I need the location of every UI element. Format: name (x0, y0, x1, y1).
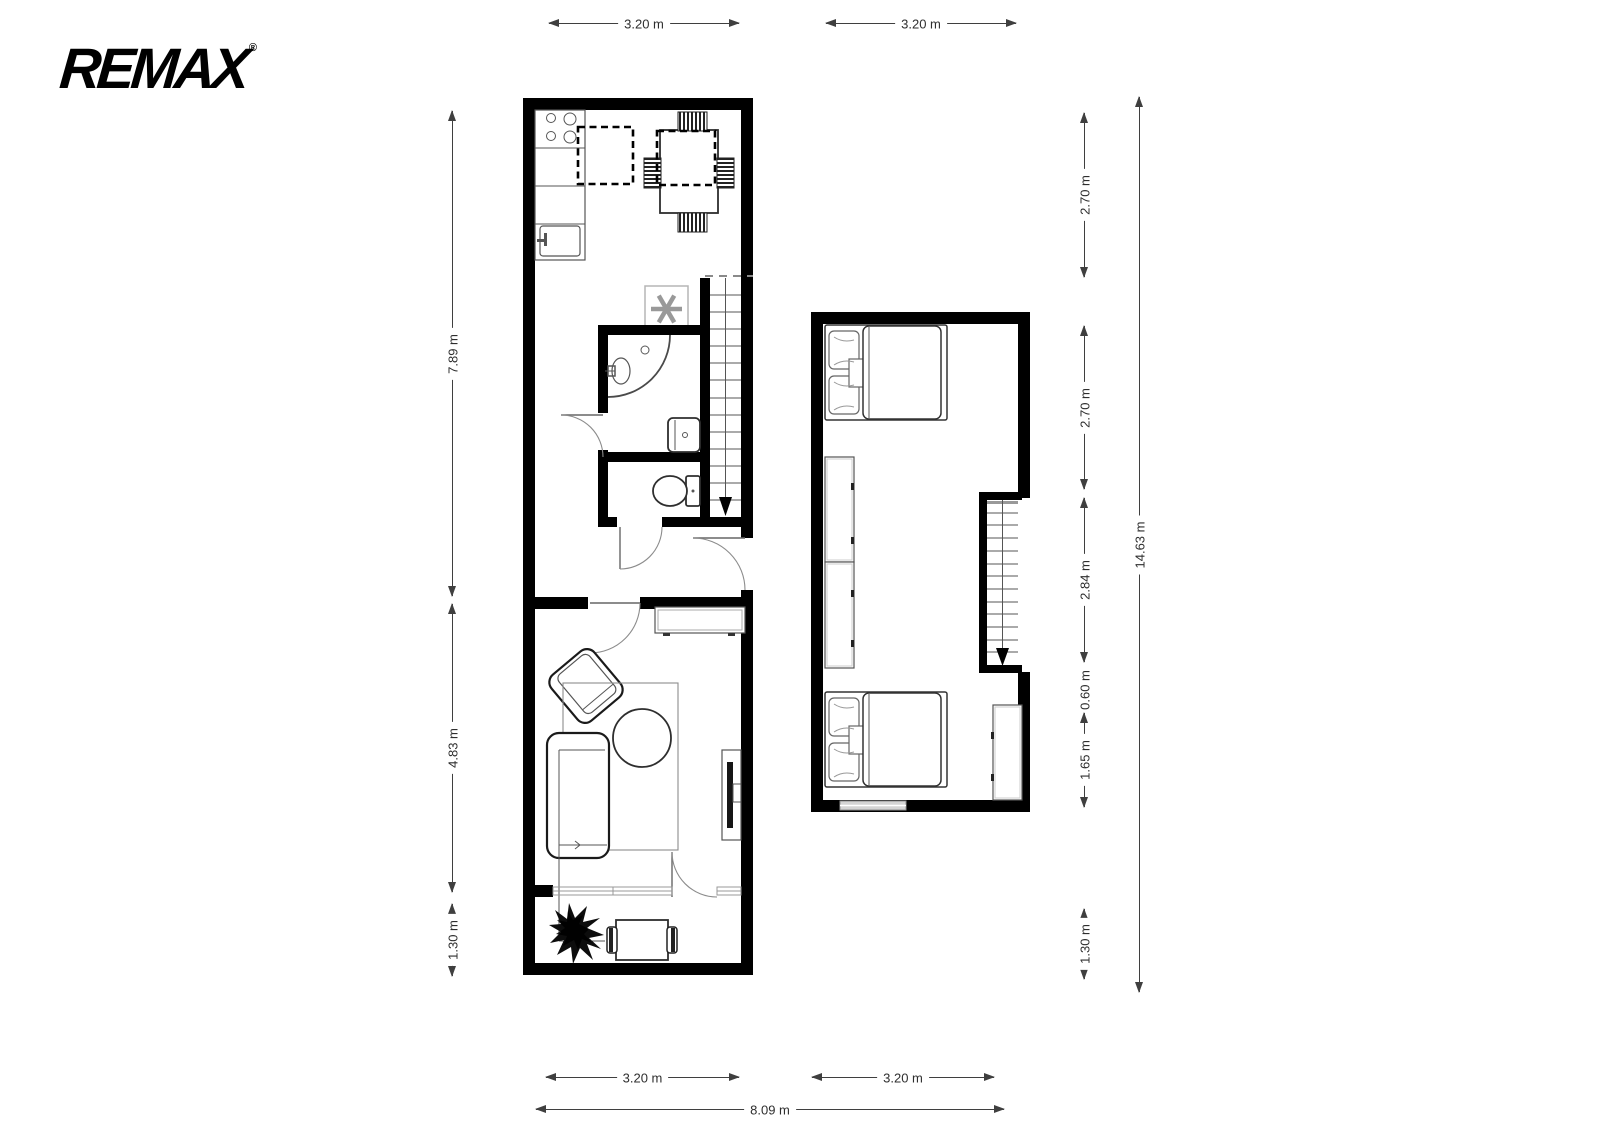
terrace-table-set (607, 920, 677, 960)
sideboard (655, 607, 745, 636)
dining-chair (644, 158, 661, 188)
window (840, 801, 906, 810)
dimension-label: 3.20 m (618, 17, 670, 32)
wc-door (620, 527, 662, 569)
dimension-total-height: 14.63 m (1133, 96, 1147, 993)
dimension-upper-zone4: 0.60 m (1078, 668, 1092, 712)
coffee-table (613, 709, 671, 767)
dimension-label: 14.63 m (1133, 515, 1148, 574)
dining-table-set (644, 112, 734, 232)
dining-chair (717, 158, 734, 188)
floorplan-canvas: REMAX® (0, 0, 1600, 1131)
entrance-door (693, 538, 745, 590)
dimension-total-width: 8.09 m (535, 1103, 1005, 1117)
dimension-ground-zone1: 7.89 m (446, 110, 460, 597)
dimension-label: 7.89 m (446, 328, 461, 380)
double-bed (825, 692, 947, 787)
plant (549, 903, 604, 964)
wardrobe (991, 705, 1022, 800)
terrace-window-wall (535, 885, 741, 897)
terrace-chair (607, 927, 617, 953)
dimension-label: 3.20 m (617, 1071, 669, 1086)
dimension-label: 3.20 m (877, 1071, 929, 1086)
double-bed (825, 325, 947, 420)
dimension-upper-zone5: 1.65 m (1078, 712, 1092, 808)
dimension-upper-top-width: 3.20 m (825, 17, 1017, 31)
dimension-label: 4.83 m (446, 722, 461, 774)
dimension-ground-zone3: 1.30 m (446, 903, 460, 977)
dimension-ground-bottom-width: 3.20 m (545, 1071, 740, 1085)
terrace-chair (667, 927, 677, 953)
staircase-down (979, 492, 1022, 673)
dining-chair (678, 213, 707, 232)
tv-unit (722, 750, 741, 840)
stair-direction-arrow (719, 497, 732, 516)
dimension-label: 3.20 m (895, 17, 947, 32)
remax-logo: REMAX® (60, 42, 257, 96)
dimension-label: 1.30 m (446, 914, 461, 966)
bathroom-door (561, 415, 603, 457)
dimension-label: 2.84 m (1078, 554, 1093, 606)
dimension-ground-top-width: 3.20 m (548, 17, 740, 31)
blanket (863, 693, 941, 786)
dining-chair (678, 112, 707, 131)
dimension-label: 1.65 m (1078, 734, 1093, 786)
upper-floor-plan (811, 312, 1030, 812)
dimension-label: 2.70 m (1078, 169, 1093, 221)
dining-table (660, 130, 718, 213)
terrace-door (672, 852, 717, 897)
remax-wordmark: REMAX (58, 42, 249, 96)
registered-trademark-icon: ® (249, 42, 257, 54)
armchair (545, 645, 626, 727)
dimension-upper-zone2: 2.70 m (1078, 325, 1092, 490)
washbasin (605, 358, 630, 384)
dimension-upper-zone6: 1.30 m (1078, 908, 1092, 980)
wardrobe (825, 562, 854, 668)
dimension-upper-zone3: 2.84 m (1078, 497, 1092, 663)
sofa (547, 733, 609, 941)
dimension-label: 1.30 m (1078, 918, 1093, 970)
washing-machine (668, 418, 700, 452)
kitchen-sink (537, 226, 580, 256)
tv (727, 762, 733, 828)
dimension-upper-zone1: 2.70 m (1078, 112, 1092, 278)
appliance-dashed-outline (578, 127, 633, 184)
stair-direction-arrow (996, 648, 1009, 666)
dimension-ground-zone2: 4.83 m (446, 603, 460, 893)
dimension-label: 2.70 m (1078, 382, 1093, 434)
blanket (863, 326, 941, 419)
dimension-upper-bottom-width: 3.20 m (811, 1071, 995, 1085)
wardrobe (825, 457, 854, 562)
dimension-label: 8.09 m (744, 1103, 796, 1118)
terrace-table (616, 920, 668, 960)
living-room-door (590, 603, 640, 653)
toilet (653, 476, 700, 506)
dimension-label: 0.60 m (1078, 664, 1093, 716)
ground-floor-plan (523, 98, 753, 975)
